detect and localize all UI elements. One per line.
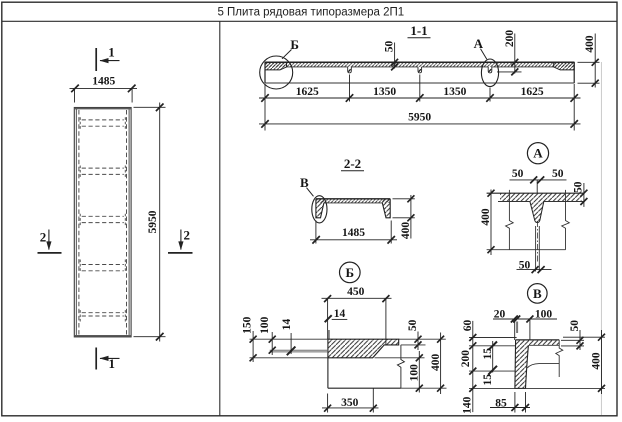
svg-text:50: 50 [384, 41, 396, 53]
svg-text:50: 50 [512, 168, 524, 180]
svg-text:20: 20 [494, 308, 506, 320]
svg-text:100: 100 [535, 308, 553, 320]
svg-text:А: А [533, 146, 543, 161]
svg-text:15: 15 [482, 348, 494, 360]
svg-text:В: В [300, 175, 309, 190]
svg-text:200: 200 [460, 350, 472, 368]
svg-text:1350: 1350 [443, 86, 466, 98]
svg-text:2: 2 [184, 228, 191, 243]
svg-text:400: 400 [430, 354, 442, 372]
svg-text:60: 60 [462, 320, 474, 332]
svg-text:400: 400 [590, 352, 602, 370]
svg-text:1: 1 [109, 356, 116, 371]
svg-text:5950: 5950 [408, 112, 431, 124]
svg-text:14: 14 [334, 308, 346, 320]
svg-text:50: 50 [573, 181, 585, 193]
svg-text:2: 2 [40, 230, 47, 245]
svg-text:1485: 1485 [92, 76, 115, 88]
svg-text:Б: Б [290, 37, 299, 52]
svg-text:150: 150 [241, 316, 253, 334]
svg-text:200: 200 [504, 30, 516, 48]
svg-text:15: 15 [482, 374, 494, 386]
svg-text:50: 50 [519, 259, 531, 271]
svg-text:400: 400 [584, 35, 596, 53]
svg-text:5950: 5950 [147, 210, 159, 233]
svg-text:14: 14 [281, 319, 293, 331]
svg-text:5 Плита рядовая типоразмера 2П: 5 Плита рядовая типоразмера 2П1 [217, 6, 404, 18]
svg-text:1-1: 1-1 [410, 23, 427, 38]
svg-text:50: 50 [552, 168, 564, 180]
svg-text:1625: 1625 [521, 86, 544, 98]
svg-text:1350: 1350 [373, 86, 396, 98]
svg-text:140: 140 [461, 396, 473, 414]
svg-text:400: 400 [400, 222, 412, 240]
svg-text:Б: Б [345, 265, 354, 280]
svg-text:400: 400 [480, 208, 492, 226]
svg-text:1485: 1485 [342, 227, 365, 239]
svg-text:50: 50 [407, 319, 419, 331]
svg-text:100: 100 [259, 316, 271, 334]
svg-text:А: А [474, 36, 484, 51]
svg-text:1625: 1625 [296, 86, 319, 98]
svg-text:85: 85 [495, 397, 507, 409]
svg-text:2-2: 2-2 [344, 156, 361, 171]
svg-text:В: В [533, 286, 542, 301]
svg-text:1: 1 [108, 45, 115, 60]
svg-text:450: 450 [347, 286, 365, 298]
svg-text:350: 350 [341, 397, 359, 409]
svg-text:50: 50 [569, 320, 581, 332]
svg-text:100: 100 [408, 364, 420, 382]
